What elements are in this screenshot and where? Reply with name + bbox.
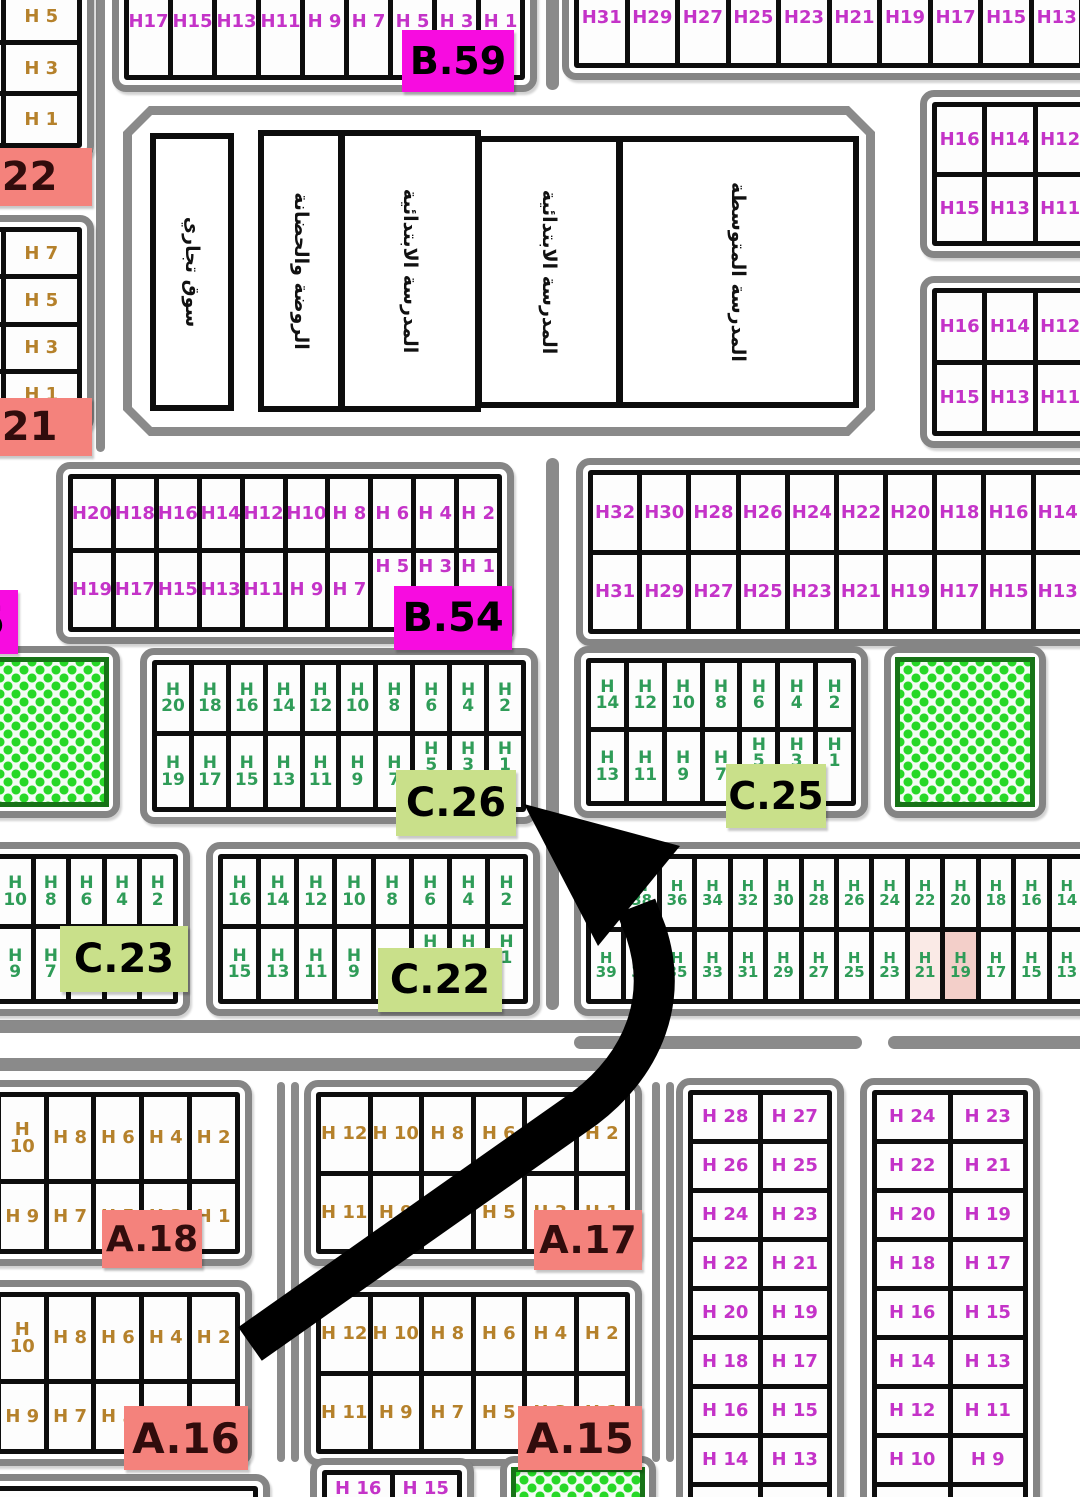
- plot-cell-H-12: H 12: [693, 1487, 758, 1497]
- block-cells: H 40H 38H 36H 34H 32H 30H 28H 26H 24H 22…: [586, 854, 1080, 1004]
- plot-cell-H-13: H 13: [953, 1340, 1024, 1384]
- plot-cell-H-8: H 8: [705, 663, 738, 727]
- school-room-label: الروضة والحضانة: [290, 192, 312, 349]
- block-label-5: 5: [0, 590, 18, 654]
- plot-cell-H-24: H 24: [693, 1193, 758, 1237]
- plot-cell-H-6: H 6: [373, 479, 411, 548]
- plot-cell-H-36: H 36: [662, 859, 692, 927]
- plot-cell-empty: [0, 0, 1, 40]
- plot-cell-H-10: H 10: [1, 1297, 44, 1379]
- plot-cell-H-10: H 10: [341, 665, 373, 731]
- block-label-.22: .22: [0, 148, 92, 206]
- plot-cell-H12: H12: [1038, 107, 1080, 172]
- plot-cell-H11: H11: [245, 553, 283, 627]
- plot-cell-H-13: H 13: [1052, 932, 1080, 1000]
- plot-cell-H-23: H 23: [763, 1193, 828, 1237]
- plot-cell-H16: H16: [937, 293, 982, 360]
- road-segment: [277, 1082, 285, 1462]
- plot-cell-H-8: H 8: [424, 1097, 471, 1171]
- plot-cell-H15: H15: [986, 555, 1030, 630]
- plot-cell-H-34: H 34: [697, 859, 727, 927]
- plot-cell-H-13: H 13: [261, 929, 294, 999]
- plot-cell-H-18: H 18: [981, 859, 1011, 927]
- plot-cell-H-10: H 10: [373, 1097, 420, 1171]
- road-segment: [0, 1058, 635, 1071]
- plot-cell-H-18: H 18: [877, 1242, 948, 1286]
- plot-cell-H-8: H 8: [424, 1297, 471, 1371]
- plot-cell-H-16: H 16: [693, 1389, 758, 1433]
- plot-cell-H-9: H 9: [373, 1376, 420, 1450]
- plot-cell-H-2: H 2: [579, 1297, 626, 1371]
- road-segment: [546, 0, 559, 90]
- plot-cell-H-11: H 11: [305, 736, 337, 807]
- block-strip-b22: H 5H 3H 1: [0, 0, 94, 160]
- block-block-mid-right: H32H30H28H26H24H22H20H18H16H14H12H31H29H…: [576, 458, 1080, 646]
- plot-cell-empty: [0, 327, 1, 369]
- plot-cell-H-11: H 11: [321, 1376, 368, 1450]
- plot-cell-H-21: H 21: [910, 932, 940, 1000]
- plot-cell-H-17: H 17: [953, 1242, 1024, 1286]
- plot-cell-H-6: H 6: [476, 1097, 523, 1171]
- block-cells: H 7H 5H 3H 1: [0, 227, 82, 421]
- block-cells: H31H29H27H25H23H21H19H17H15H13H11: [574, 0, 1080, 68]
- block-label-C.25: C.25: [726, 764, 826, 828]
- plot-cell-H29: H29: [642, 555, 686, 630]
- plot-cell-H-11: H 11: [953, 1389, 1024, 1433]
- plot-cell-H16: H16: [159, 479, 197, 548]
- plot-cell-H-22: H 22: [877, 1144, 948, 1188]
- plot-cell-H21: H21: [839, 555, 883, 630]
- plot-cell-H-9: H 9: [1, 1184, 44, 1249]
- plot-cell-H-19: H 19: [953, 1193, 1024, 1237]
- plot-cell-H18: H18: [116, 479, 154, 548]
- plot-cell-H-15: H 15: [953, 1291, 1024, 1335]
- plot-cell-H27: H27: [680, 0, 726, 63]
- plot-cell-H-33: H 33: [697, 932, 727, 1000]
- plot-cell-H19: H19: [888, 555, 932, 630]
- plot-cell-H-4: H 4: [144, 1097, 187, 1179]
- plot-cell-H-7: H 7: [349, 0, 388, 75]
- school-room-label: المدرسة المتوسطة: [727, 182, 749, 362]
- road-segment: [291, 1082, 299, 1462]
- plot-cell-H-23: H 23: [953, 1095, 1024, 1139]
- plot-cell-H15: H15: [937, 365, 982, 432]
- block-label-B.54: B.54: [394, 586, 512, 650]
- plot-cell-H-18: H 18: [693, 1340, 758, 1384]
- plot-cell-H28: H28: [691, 475, 735, 550]
- plot-cell-H-2: H 2: [459, 479, 497, 548]
- plot-cell-H-7: H 7: [49, 1184, 92, 1249]
- block-cells: H32H30H28H26H24H22H20H18H16H14H12H31H29H…: [588, 470, 1080, 634]
- plot-cell-H-40: H 40: [591, 859, 621, 927]
- plot-cell-H-16: H 16: [327, 1475, 390, 1497]
- plot-cell-H-12: H 12: [877, 1389, 948, 1433]
- block-cells: H 28H 27H 26H 25H 24H 23H 22H 21H 20H 19…: [688, 1090, 832, 1497]
- block-block-h16-h15: H 16H 15: [310, 1458, 474, 1497]
- plot-cell-H-37: H 37: [626, 932, 656, 1000]
- plot-cell-H-4: H 4: [107, 859, 138, 924]
- plot-cell-H-2: H 2: [489, 665, 521, 731]
- plot-cell-H17: H17: [937, 555, 981, 630]
- plot-cell-H-4: H 4: [416, 479, 454, 548]
- plot-cell-H-6: H 6: [414, 859, 447, 924]
- plot-cell-H-32: H 32: [733, 859, 763, 927]
- plot-cell-H-17: H 17: [981, 932, 1011, 1000]
- plot-cell-H-10: H 10: [1, 1097, 44, 1179]
- plot-cell-H16: H16: [986, 475, 1030, 550]
- block-cells: [0, 1486, 258, 1497]
- plot-cell-H-16: H 16: [1016, 859, 1046, 927]
- plot-cell-H32: H32: [593, 475, 637, 550]
- park-park-west: [0, 646, 120, 818]
- plot-cell-H14: H14: [987, 293, 1032, 360]
- plot-cell-H-5: H 5: [476, 1176, 523, 1250]
- plot-cell-H15: H15: [173, 0, 212, 75]
- plot-cell-H10: H10: [288, 479, 326, 548]
- plot-cell-H-8: H 8: [49, 1297, 92, 1379]
- plot-cell-H-22: H 22: [693, 1242, 758, 1286]
- plot-cell-H-4: H 4: [144, 1297, 187, 1379]
- plot-cell-H11: H11: [1038, 177, 1080, 242]
- block-row-top-right: H31H29H27H25H23H21H19H17H15H13H11: [562, 0, 1080, 80]
- plot-cell-H13: H13: [987, 365, 1032, 432]
- plot-cell-H20: H20: [73, 479, 111, 548]
- plot-cell-H-4: H 4: [780, 663, 813, 727]
- plot-cell-H-27: H 27: [763, 1095, 828, 1139]
- plot-cell-H-9: H 9: [1, 1384, 44, 1449]
- plot-cell-H11: H11: [261, 0, 300, 75]
- plot-cell-H-8: H 8: [378, 665, 410, 731]
- plot-cell-H-10: H 10: [667, 663, 700, 727]
- plot-cell-H-3: H 3: [6, 45, 78, 92]
- park-pattern: [0, 657, 109, 807]
- plot-cell-H-15: H 15: [223, 929, 256, 999]
- plot-cell-H-28: H 28: [804, 859, 834, 927]
- block-label-C.22: C.22: [378, 948, 502, 1012]
- plot-cell-H-27: H 27: [804, 932, 834, 1000]
- plot-cell-H24: H24: [790, 475, 834, 550]
- plot-cell-H-12: H 12: [305, 665, 337, 731]
- block-label-A.17: A.17: [534, 1210, 642, 1270]
- plot-cell-H-11: H 11: [629, 732, 662, 801]
- plot-cell-H-7: H 7: [49, 1384, 92, 1449]
- plot-cell-H-20: H 20: [693, 1291, 758, 1335]
- block-block-c-east: H 40H 38H 36H 34H 32H 30H 28H 26H 24H 22…: [574, 842, 1080, 1016]
- plot-cell-H29: H29: [630, 0, 676, 63]
- road-segment: [652, 1082, 660, 1462]
- plot-cell-H-4: H 4: [527, 1297, 574, 1371]
- block-cells: H16H14H12H15H13H11: [932, 288, 1080, 436]
- plot-cell-H-15: H 15: [763, 1389, 828, 1433]
- plot-cell-empty: [0, 45, 1, 92]
- road-segment: [888, 1036, 1080, 1049]
- plot-cell-H-7: H 7: [953, 1487, 1024, 1497]
- plot-cell-H-10: H 10: [337, 859, 370, 924]
- plot-cell-H-25: H 25: [763, 1144, 828, 1188]
- block-label-A.16: A.16: [124, 1406, 248, 1470]
- plot-cell-H-12: H 12: [321, 1297, 368, 1371]
- plot-cell-H13: H13: [1036, 555, 1080, 630]
- plot-cell-H-1: H 1: [6, 96, 78, 143]
- plot-cell-H-12: H 12: [321, 1097, 368, 1171]
- plot-cell-H18: H18: [937, 475, 981, 550]
- plot-cell-H-18: H 18: [194, 665, 226, 731]
- plot-cell-H-26: H 26: [693, 1144, 758, 1188]
- plot-cell-H-14: H 14: [877, 1340, 948, 1384]
- block-label-A.18: A.18: [102, 1210, 202, 1268]
- plot-cell-H-13: H 13: [763, 1438, 828, 1482]
- plot-cell-H-14: H 14: [591, 663, 624, 727]
- plot-cell-H-20: H 20: [877, 1193, 948, 1237]
- block-label-B.59: B.59: [402, 30, 514, 92]
- plot-cell-H-11: H 11: [763, 1487, 828, 1497]
- plot-cell-H-2: H 2: [192, 1297, 235, 1379]
- block-grid-ne-1: H16H14H12H15H13H11: [920, 90, 1080, 258]
- plot-cell-H-14: H 14: [1052, 859, 1080, 927]
- plot-cell-H26: H26: [741, 475, 785, 550]
- plot-cell-H-38: H 38: [626, 859, 656, 927]
- plot-cell-empty: [0, 1491, 253, 1497]
- plot-cell-H-16: H 16: [877, 1291, 948, 1335]
- subdivision-map: H 5H 3H 1H 7H 5H 3H 1H17H15H13H11H 9H 7H…: [0, 0, 1080, 1497]
- plot-cell-H-5: H 5: [6, 279, 78, 321]
- school-room-1: سوق تجاري: [150, 133, 234, 411]
- plot-cell-H-9: H 9: [288, 553, 326, 627]
- plot-cell-H-6: H 6: [71, 859, 102, 924]
- plot-cell-H14: H14: [987, 107, 1032, 172]
- school-room-4: المدرسة الابتدائية: [476, 136, 622, 408]
- plot-cell-H21: H21: [832, 0, 878, 63]
- park-pattern: [511, 1467, 645, 1497]
- plot-cell-H-14: H 14: [261, 859, 294, 924]
- plot-cell-H-9: H 9: [305, 0, 344, 75]
- plot-cell-H15: H15: [159, 553, 197, 627]
- plot-cell-H23: H23: [790, 555, 834, 630]
- school-room-label: المدرسة الابتدائية: [538, 190, 560, 355]
- road-segment: [96, 0, 105, 452]
- plot-cell-H-8: H 8: [330, 479, 368, 548]
- plot-cell-H-19: H 19: [763, 1291, 828, 1335]
- plot-cell-H20: H20: [888, 475, 932, 550]
- plot-cell-H-26: H 26: [839, 859, 869, 927]
- plot-cell-H-21: H 21: [763, 1242, 828, 1286]
- plot-cell-H17: H17: [129, 0, 168, 75]
- block-label-A.15: A.15: [518, 1406, 642, 1470]
- plot-cell-H22: H22: [839, 475, 883, 550]
- plot-cell-H-24: H 24: [874, 859, 904, 927]
- school-room-label: سوق تجاري: [181, 217, 203, 328]
- plot-cell-H13: H13: [202, 553, 240, 627]
- plot-cell-H19: H19: [882, 0, 928, 63]
- plot-cell-H-9: H 9: [373, 1176, 420, 1250]
- plot-cell-H-9: H 9: [953, 1438, 1024, 1482]
- plot-cell-H-8: H 8: [36, 859, 67, 924]
- plot-cell-H-10: H 10: [0, 859, 31, 924]
- plot-cell-H-3: H 3: [6, 327, 78, 369]
- plot-cell-H-2: H 2: [192, 1097, 235, 1179]
- plot-cell-H-6: H 6: [96, 1297, 139, 1379]
- plot-cell-H-7: H 7: [330, 553, 368, 627]
- plot-cell-H15: H15: [983, 0, 1029, 63]
- plot-cell-H-9: H 9: [667, 732, 700, 801]
- plot-cell-H-14: H 14: [693, 1438, 758, 1482]
- plot-cell-H-4: H 4: [527, 1097, 574, 1171]
- plot-cell-H-15: H 15: [1016, 932, 1046, 1000]
- plot-cell-H-30: H 30: [768, 859, 798, 927]
- plot-cell-H-6: H 6: [415, 665, 447, 731]
- plot-cell-H-19: H 19: [157, 736, 189, 807]
- plot-cell-H14: H14: [202, 479, 240, 548]
- road-segment: [0, 1020, 635, 1033]
- plot-cell-H27: H27: [691, 555, 735, 630]
- plot-cell-H-19: H 19: [945, 932, 975, 1000]
- plot-cell-H-7: H 7: [424, 1176, 471, 1250]
- plot-cell-H-11: H 11: [299, 929, 332, 999]
- plot-cell-H-4: H 4: [452, 859, 485, 924]
- road-segment: [546, 458, 559, 1010]
- plot-cell-H13: H13: [1034, 0, 1080, 63]
- plot-cell-H-5: H 5: [6, 0, 78, 40]
- plot-cell-H25: H25: [741, 555, 785, 630]
- school-room-3: المدرسة الابتدائية: [339, 130, 481, 412]
- school-room-2: الروضة والحضانة: [258, 130, 344, 412]
- plot-cell-H-22: H 22: [910, 859, 940, 927]
- school-room-5: المدرسة المتوسطة: [617, 136, 859, 408]
- school-room-label: المدرسة الابتدائية: [399, 189, 421, 354]
- block-label-C.23: C.23: [60, 926, 188, 992]
- plot-cell-H19: H19: [73, 553, 111, 627]
- plot-cell-H-29: H 29: [768, 932, 798, 1000]
- plot-cell-H-25: H 25: [839, 932, 869, 1000]
- block-label-C.26: C.26: [396, 770, 516, 836]
- plot-cell-H-9: H 9: [337, 929, 370, 999]
- plot-cell-H-14: H 14: [268, 665, 300, 731]
- plot-cell-H-8: H 8: [877, 1487, 948, 1497]
- block-cells: H 16H 15: [322, 1470, 462, 1497]
- block-label-.21: .21: [0, 398, 92, 456]
- plot-cell-H12: H12: [245, 479, 283, 548]
- plot-cell-H-16: H 16: [223, 859, 256, 924]
- plot-cell-H-8: H 8: [376, 859, 409, 924]
- plot-cell-H-17: H 17: [763, 1340, 828, 1384]
- plot-cell-H-24: H 24: [877, 1095, 948, 1139]
- plot-cell-H-6: H 6: [476, 1297, 523, 1371]
- plot-cell-H-6: H 6: [742, 663, 775, 727]
- plot-cell-H13: H13: [987, 177, 1032, 242]
- plot-cell-H11: H11: [1038, 365, 1080, 432]
- plot-cell-H12: H12: [1038, 293, 1080, 360]
- plot-cell-H-16: H 16: [231, 665, 263, 731]
- plot-cell-H-23: H 23: [874, 932, 904, 1000]
- block-grid-ne-2: H16H14H12H15H13H11: [920, 276, 1080, 448]
- plot-cell-H-13: H 13: [591, 732, 624, 801]
- plot-cell-H-35: H 35: [662, 932, 692, 1000]
- plot-cell-H-6: H 6: [96, 1097, 139, 1179]
- block-frame-bottom-left: [0, 1474, 270, 1497]
- plot-cell-H14: H14: [1036, 475, 1080, 550]
- plot-cell-H23: H23: [781, 0, 827, 63]
- park-park-east: [884, 646, 1046, 818]
- plot-cell-H-2: H 2: [818, 663, 851, 727]
- plot-cell-H31: H31: [593, 555, 637, 630]
- plot-cell-H-12: H 12: [299, 859, 332, 924]
- plot-cell-empty: [0, 279, 1, 321]
- plot-cell-H-12: H 12: [629, 663, 662, 727]
- plot-cell-H17: H17: [116, 553, 154, 627]
- plot-cell-H-39: H 39: [591, 932, 621, 1000]
- plot-cell-H-15: H 15: [395, 1475, 458, 1497]
- plot-cell-H16: H16: [937, 107, 982, 172]
- plot-cell-H-2: H 2: [490, 859, 523, 924]
- plot-cell-H30: H30: [642, 475, 686, 550]
- plot-cell-H-9: H 9: [0, 929, 31, 999]
- plot-cell-H-2: H 2: [142, 859, 173, 924]
- plot-cell-H-7: H 7: [424, 1376, 471, 1450]
- block-grid-se-1: H 28H 27H 26H 25H 24H 23H 22H 21H 20H 19…: [676, 1078, 844, 1497]
- plot-cell-H-17: H 17: [194, 736, 226, 807]
- plot-cell-H-10: H 10: [373, 1297, 420, 1371]
- plot-cell-H-31: H 31: [733, 932, 763, 1000]
- plot-cell-H-20: H 20: [157, 665, 189, 731]
- plot-cell-H-15: H 15: [231, 736, 263, 807]
- plot-cell-empty: [0, 232, 1, 274]
- road-segment: [574, 1036, 862, 1049]
- plot-cell-H-11: H 11: [321, 1176, 368, 1250]
- plot-cell-H-20: H 20: [945, 859, 975, 927]
- plot-cell-H-8: H 8: [49, 1097, 92, 1179]
- plot-cell-H-5: H 5: [476, 1376, 523, 1450]
- plot-cell-empty: [0, 96, 1, 143]
- block-cells: H16H14H12H15H13H11: [932, 102, 1080, 246]
- plot-cell-H-4: H 4: [452, 665, 484, 731]
- park-pattern: [895, 657, 1035, 807]
- plot-cell-H-13: H 13: [268, 736, 300, 807]
- plot-cell-H-7: H 7: [6, 232, 78, 274]
- plot-cell-H13: H13: [217, 0, 256, 75]
- block-cells: H 24H 23H 22H 21H 20H 19H 18H 17H 16H 15…: [872, 1090, 1028, 1497]
- plot-cell-H-10: H 10: [877, 1438, 948, 1482]
- plot-cell-H17: H17: [933, 0, 979, 63]
- plot-cell-H-28: H 28: [693, 1095, 758, 1139]
- road-segment: [666, 1082, 674, 1462]
- plot-cell-H25: H25: [731, 0, 777, 63]
- plot-cell-H15: H15: [937, 177, 982, 242]
- block-grid-se-2: H 24H 23H 22H 21H 20H 19H 18H 17H 16H 15…: [860, 1078, 1040, 1497]
- plot-cell-H-9: H 9: [341, 736, 373, 807]
- block-cells: H 5H 3H 1: [0, 0, 82, 148]
- plot-cell-H-2: H 2: [579, 1097, 626, 1171]
- plot-cell-H31: H31: [579, 0, 625, 63]
- plot-cell-H-21: H 21: [953, 1144, 1024, 1188]
